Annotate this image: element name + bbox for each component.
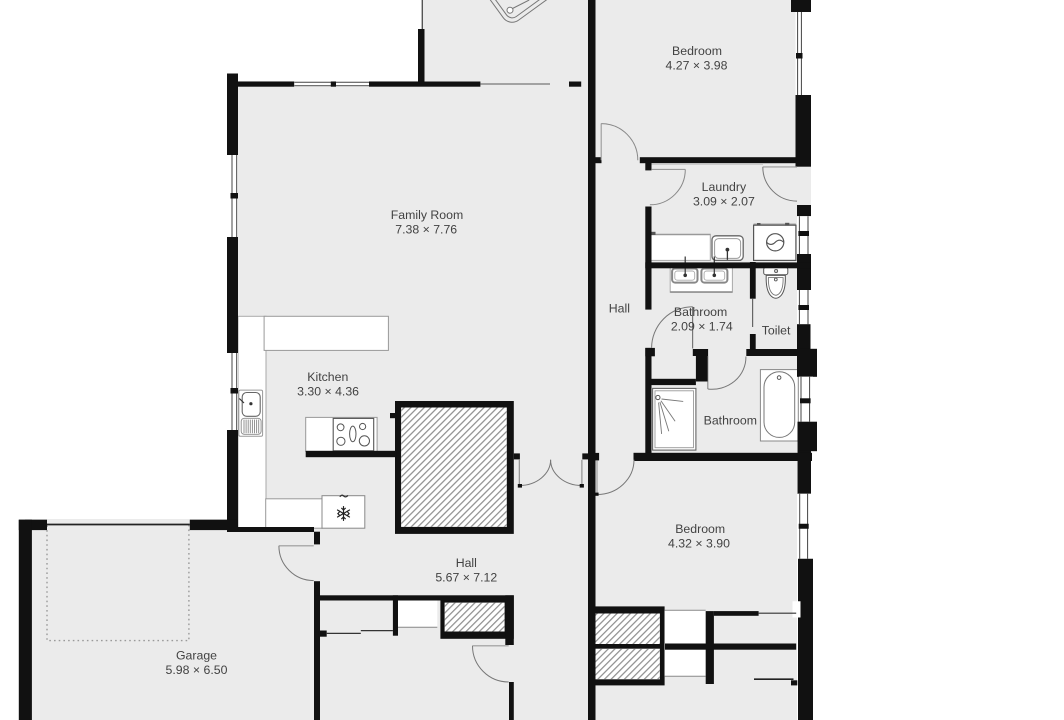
svg-text:Garage: Garage [176,649,217,663]
svg-text:Kitchen: Kitchen [307,370,348,384]
svg-text:2.09 × 1.74: 2.09 × 1.74 [671,320,733,334]
svg-text:Family Room: Family Room [391,208,463,222]
svg-text:4.27 × 3.98: 4.27 × 3.98 [666,59,728,73]
svg-text:Hall: Hall [456,556,477,570]
svg-text:Toilet: Toilet [762,323,791,337]
svg-text:Hall: Hall [609,301,630,315]
svg-text:Bathroom: Bathroom [674,305,727,319]
svg-text:Bedroom: Bedroom [672,44,722,58]
svg-text:7.38 × 7.76: 7.38 × 7.76 [395,223,457,237]
svg-text:Laundry: Laundry [702,180,747,194]
svg-text:3.30 × 4.36: 3.30 × 4.36 [297,385,359,399]
svg-text:Bedroom: Bedroom [675,522,725,536]
svg-text:Bathroom: Bathroom [704,414,757,428]
svg-text:3.09 × 2.07: 3.09 × 2.07 [693,194,755,208]
svg-text:4.32 × 3.90: 4.32 × 3.90 [668,536,730,550]
svg-text:5.67 × 7.12: 5.67 × 7.12 [435,571,497,585]
svg-text:5.98 × 6.50: 5.98 × 6.50 [166,663,228,677]
